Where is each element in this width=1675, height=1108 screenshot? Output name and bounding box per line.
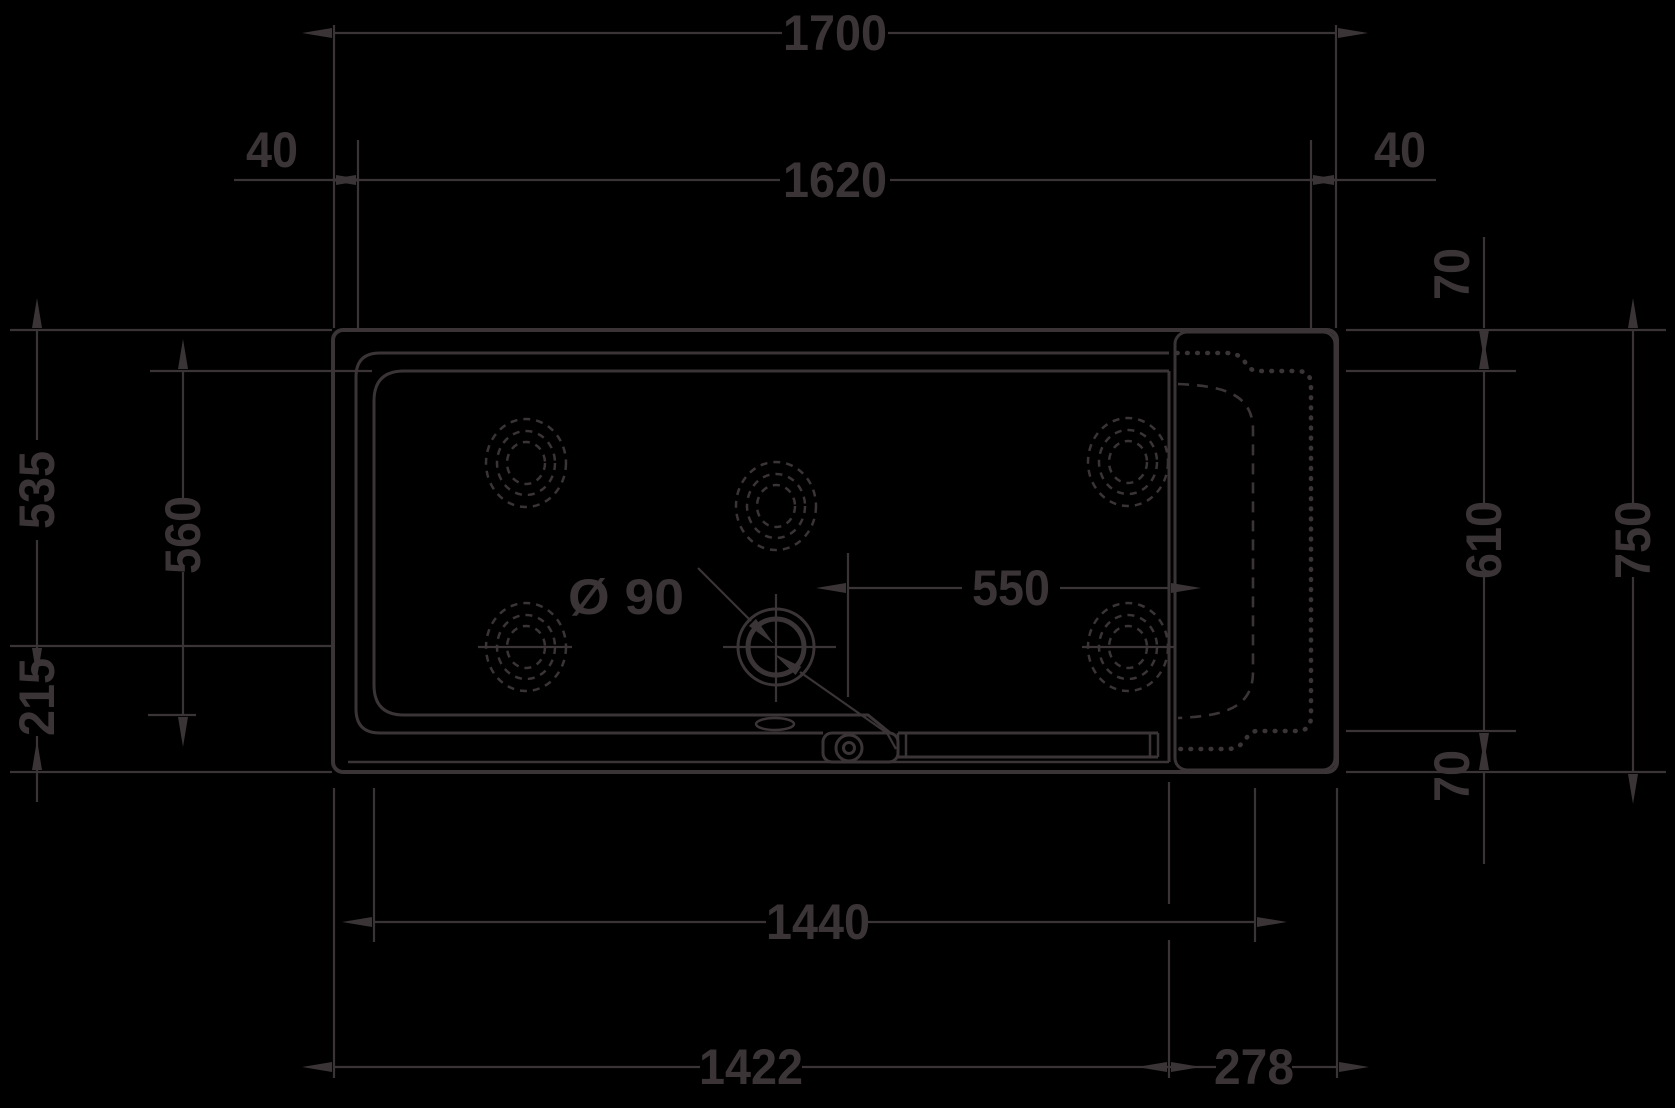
dim-inner-length: 1620 <box>783 152 887 208</box>
whirl-jet <box>1088 418 1168 506</box>
dim-wall-bottom: 70 <box>1424 750 1480 802</box>
bathtub-plan-drawing: 1700 40 1620 40 70 535 560 215 610 750 Ø… <box>0 0 1675 1108</box>
front-panel <box>898 733 1158 757</box>
drain-leader-line-2 <box>800 672 887 733</box>
dim-jetline-top: 535 <box>9 451 65 529</box>
basin-inner-line <box>374 371 1169 733</box>
whirl-jets <box>486 418 1168 691</box>
dim-overall-width: 750 <box>1605 501 1661 579</box>
dimension-labels: 1700 40 1620 40 70 535 560 215 610 750 Ø… <box>9 5 1661 1095</box>
overflow-slot <box>756 718 794 730</box>
dim-offset-left: 40 <box>246 122 298 178</box>
whirl-jet <box>486 419 566 507</box>
dim-basin-floor: 1440 <box>766 894 870 950</box>
dim-drain-diameter: Ø 90 <box>568 569 684 625</box>
dim-basin-left: 560 <box>155 496 211 574</box>
tub-rim-line <box>356 353 1169 733</box>
whirl-jet <box>736 462 816 550</box>
dim-jetline-bottom: 215 <box>9 658 65 736</box>
dim-offset-right: 40 <box>1374 122 1426 178</box>
backrest-dashed-profile <box>1178 384 1253 718</box>
dim-basin-width: 610 <box>1456 501 1512 579</box>
waste-actuator <box>823 733 898 762</box>
dim-wall-top: 70 <box>1424 248 1480 300</box>
seat-section <box>1177 353 1311 749</box>
tub-outline <box>333 330 1337 772</box>
dim-seat-section: 278 <box>1214 1039 1294 1095</box>
dim-drain-offset: 550 <box>972 560 1050 616</box>
technical-drawing-page: 1700 40 1620 40 70 535 560 215 610 750 Ø… <box>0 0 1675 1108</box>
headrest-dotted-outline <box>1177 353 1311 749</box>
dim-overall-length: 1700 <box>783 5 887 61</box>
drain-leader-line <box>698 568 751 621</box>
tub-outer-edge <box>333 330 1337 772</box>
dim-left-section: 1422 <box>699 1039 803 1095</box>
